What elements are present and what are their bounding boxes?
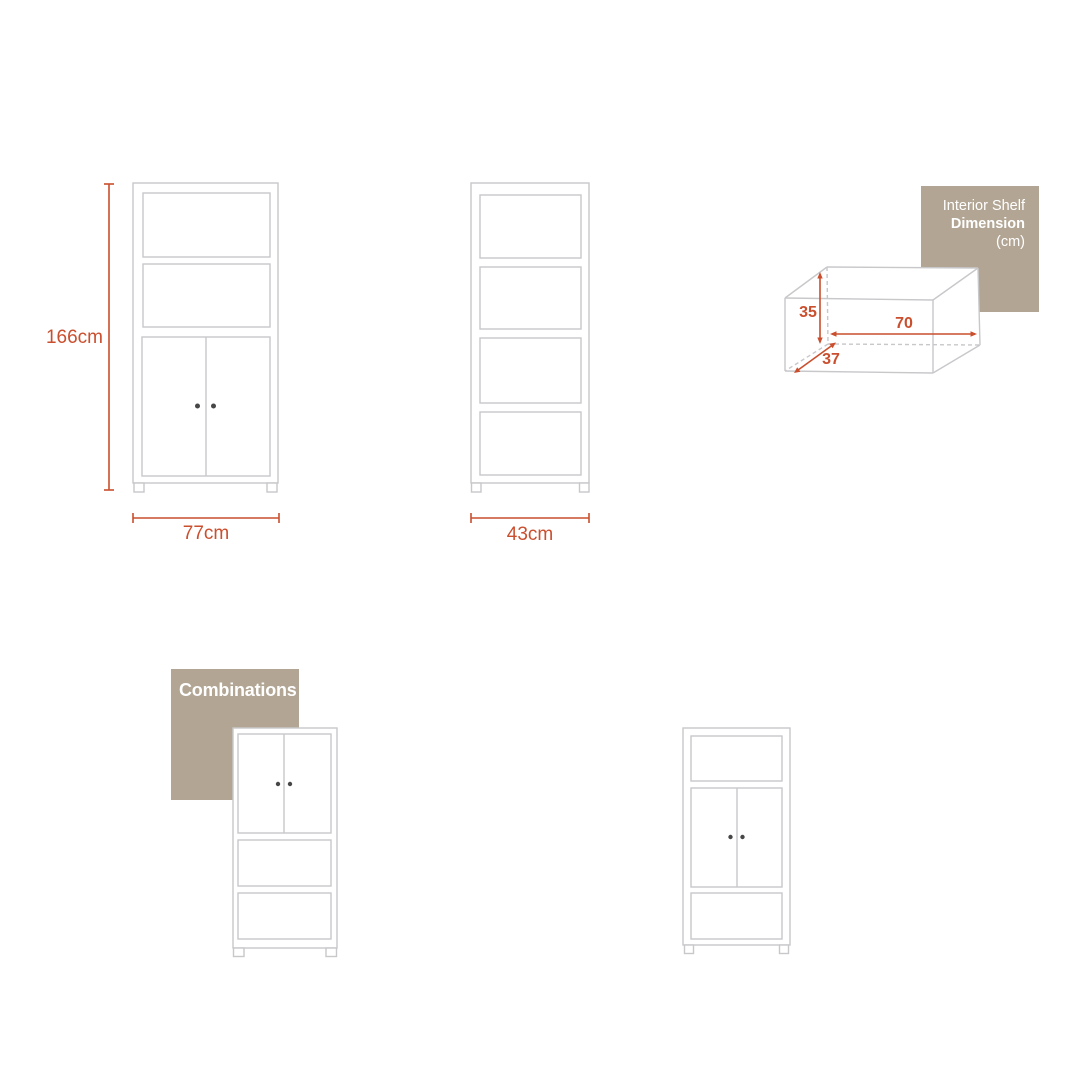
front-height-dimension-label: 166cm bbox=[28, 327, 103, 349]
front-height-dimension-line bbox=[104, 184, 114, 490]
front-left-door-handle bbox=[195, 404, 200, 409]
shelf-depth-value-label: 37 bbox=[817, 351, 845, 369]
combo2-open-shelf-bottom bbox=[691, 893, 782, 939]
interior-shelf-label-line1: Interior Shelf bbox=[921, 197, 1025, 215]
front-right-foot bbox=[267, 483, 277, 492]
side-width-dimension-label: 43cm bbox=[480, 524, 580, 546]
front-width-dimension-label: 77cm bbox=[156, 523, 256, 545]
combination-cabinet-2-drawing bbox=[683, 728, 790, 954]
cabinet-front-drawing bbox=[133, 183, 278, 492]
shelf-height-value-label: 35 bbox=[796, 304, 820, 322]
combo1-open-shelf-2 bbox=[238, 893, 331, 939]
cabinet-side-drawing bbox=[471, 183, 589, 492]
combo2-right-door-handle bbox=[740, 835, 744, 839]
combo2-left-foot bbox=[685, 945, 694, 954]
front-right-door-handle bbox=[211, 404, 216, 409]
combo2-right-foot bbox=[780, 945, 789, 954]
side-right-foot bbox=[580, 483, 590, 492]
combo2-left-door-handle bbox=[728, 835, 732, 839]
interior-shelf-label-line2: Dimension bbox=[921, 215, 1025, 233]
interior-shelf-label-line3: (cm) bbox=[921, 233, 1025, 251]
combo1-right-foot bbox=[326, 948, 337, 957]
side-panel-3 bbox=[480, 338, 581, 403]
interior-shelf-dimension-label: Interior Shelf Dimension (cm) bbox=[921, 186, 1039, 312]
front-width-dimension-line bbox=[133, 513, 279, 523]
side-left-foot bbox=[472, 483, 482, 492]
combo2-open-shelf-top bbox=[691, 736, 782, 781]
combinations-label: Combinations bbox=[171, 669, 299, 800]
front-door-section bbox=[142, 337, 270, 476]
side-width-dimension-line bbox=[471, 513, 589, 523]
side-panel-4 bbox=[480, 412, 581, 475]
front-left-foot bbox=[134, 483, 144, 492]
combo1-open-shelf-1 bbox=[238, 840, 331, 886]
front-open-shelf-top bbox=[143, 193, 270, 257]
side-panel-2 bbox=[480, 267, 581, 329]
side-panel-1 bbox=[480, 195, 581, 258]
combo1-left-foot bbox=[234, 948, 245, 957]
front-open-shelf-middle bbox=[143, 264, 270, 327]
combinations-label-text: Combinations bbox=[179, 680, 299, 701]
combo2-door-section bbox=[691, 788, 782, 887]
dimension-diagram: Interior Shelf Dimension (cm) Combinatio… bbox=[0, 0, 1080, 1080]
shelf-width-value-label: 70 bbox=[890, 315, 918, 333]
